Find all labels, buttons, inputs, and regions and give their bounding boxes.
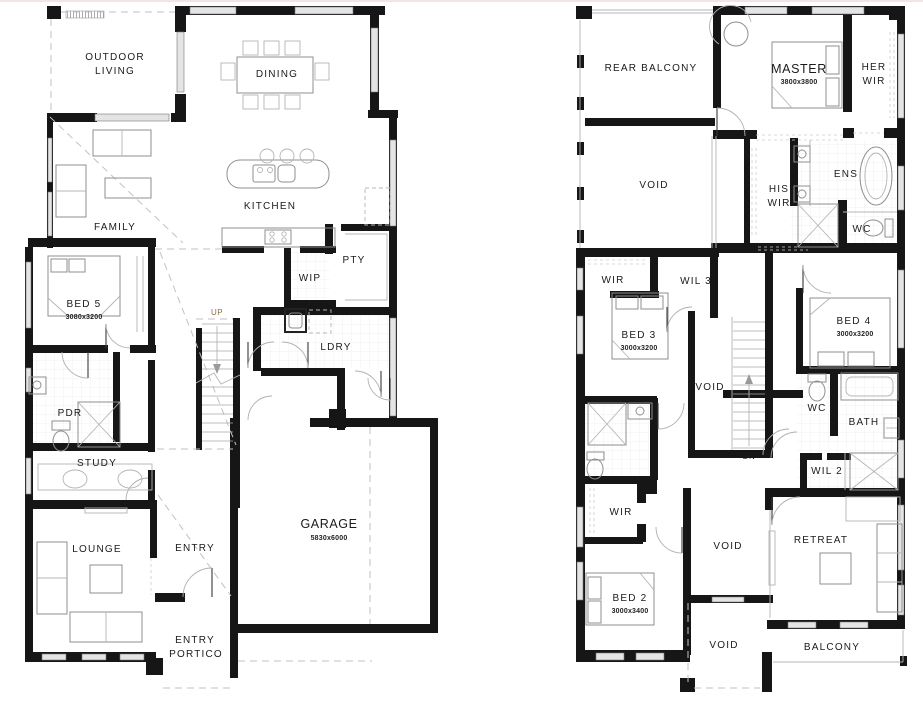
room-label-balcony: BALCONY (804, 642, 860, 653)
room-label-void-upper: VOID (639, 180, 668, 191)
retreat-door-arc (772, 497, 800, 525)
room-label-his-wir-2: WIR (767, 198, 790, 209)
room-label-retreat: RETREAT (794, 535, 848, 546)
bed4-door-arc (803, 265, 831, 293)
front-door-arc (183, 568, 212, 597)
room-dim-bed4: 3000x3200 (837, 331, 874, 338)
room-dim-master: 3800x3800 (781, 79, 818, 86)
room-label-bath: BATH (849, 417, 880, 428)
first-floor-plan: REAR BALCONY MASTER 3800x3800 HER WIR VO… (576, 5, 907, 692)
room-label-ens: ENS (834, 169, 858, 180)
room-label-rear-balcony: REAR BALCONY (605, 63, 698, 74)
wc-door-arc (771, 432, 797, 458)
garage-door-arc (355, 371, 381, 397)
stair-arrow-up (745, 374, 753, 384)
room-label-entry-portico-2: PORTICO (169, 649, 223, 660)
room-label-outdoor-living-2: LIVING (95, 66, 135, 77)
stair-label-up: UP (211, 308, 223, 317)
room-label-pdr: PDR (58, 408, 83, 419)
room-label-kitchen: KITCHEN (244, 201, 296, 212)
ldry-side-door-arc (368, 378, 390, 400)
room-label-study: STUDY (77, 458, 117, 469)
room-label-her-wir: HER (862, 62, 887, 73)
room-label-void-stair: VOID (695, 382, 724, 393)
room-dim-garage: 5830x6000 (311, 535, 348, 542)
fridge-space (365, 188, 390, 225)
room-label-bed4: BED 4 (837, 316, 872, 327)
floor-plan-drawing: OUTDOOR LIVING DINING FAMILY KITCHEN BED… (0, 0, 923, 721)
room-label-outdoor-living: OUTDOOR (85, 52, 145, 63)
stair-label-dn: DN (743, 452, 756, 461)
first-stairs (733, 322, 765, 448)
room-label-wip: WIP (299, 273, 322, 284)
floor-plan-page: OUTDOOR LIVING DINING FAMILY KITCHEN BED… (0, 0, 923, 721)
bed5-door-arc (106, 324, 130, 348)
room-label-dining: DINING (256, 69, 298, 80)
armchair (724, 22, 748, 46)
study-door-arc (126, 478, 148, 500)
room-label-garage: GARAGE (300, 517, 357, 531)
room-dim-bed5: 3080x3200 (66, 314, 103, 321)
bed2-door-arc (656, 527, 682, 553)
pendant-light (260, 149, 274, 163)
bathroom-door-arc (658, 403, 684, 429)
room-label-bed2: BED 2 (613, 593, 648, 604)
room-label-void-lower: VOID (713, 541, 742, 552)
room-label-entry: ENTRY (175, 543, 215, 554)
room-label-wir-bed3: WIR (601, 275, 624, 286)
ground-floor-plan: OUTDOOR LIVING DINING FAMILY KITCHEN BED… (25, 6, 438, 688)
room-label-ldry: LDRY (320, 342, 351, 353)
room-label-bed5: BED 5 (67, 299, 102, 310)
room-label-entry-portico: ENTRY (175, 635, 215, 646)
room-label-family: FAMILY (94, 222, 136, 233)
pendant-light (300, 149, 314, 163)
room-label-wil2: WIL 2 (811, 466, 843, 477)
room-label-master: MASTER (771, 62, 827, 76)
room-label-wil3: WIL 3 (680, 276, 712, 287)
room-label-bed3: BED 3 (622, 330, 657, 341)
room-label-ens-wc: WC (852, 224, 871, 235)
room-label-wir-bed2: WIR (609, 507, 632, 518)
room-label-his-wir: HIS (769, 184, 789, 195)
page-top-border (0, 0, 923, 2)
room-label-her-wir-2: WIR (862, 76, 885, 87)
room-label-pty: PTY (342, 255, 365, 266)
room-label-wc: WC (807, 403, 826, 414)
room-dim-bed3: 3000x3200 (621, 345, 658, 352)
pendant-light (280, 149, 294, 163)
hall-door-arc2 (248, 396, 272, 420)
room-dim-bed2: 3000x3400 (612, 608, 649, 615)
room-label-void-bottom: VOID (709, 640, 738, 651)
room-label-lounge: LOUNGE (72, 544, 121, 555)
